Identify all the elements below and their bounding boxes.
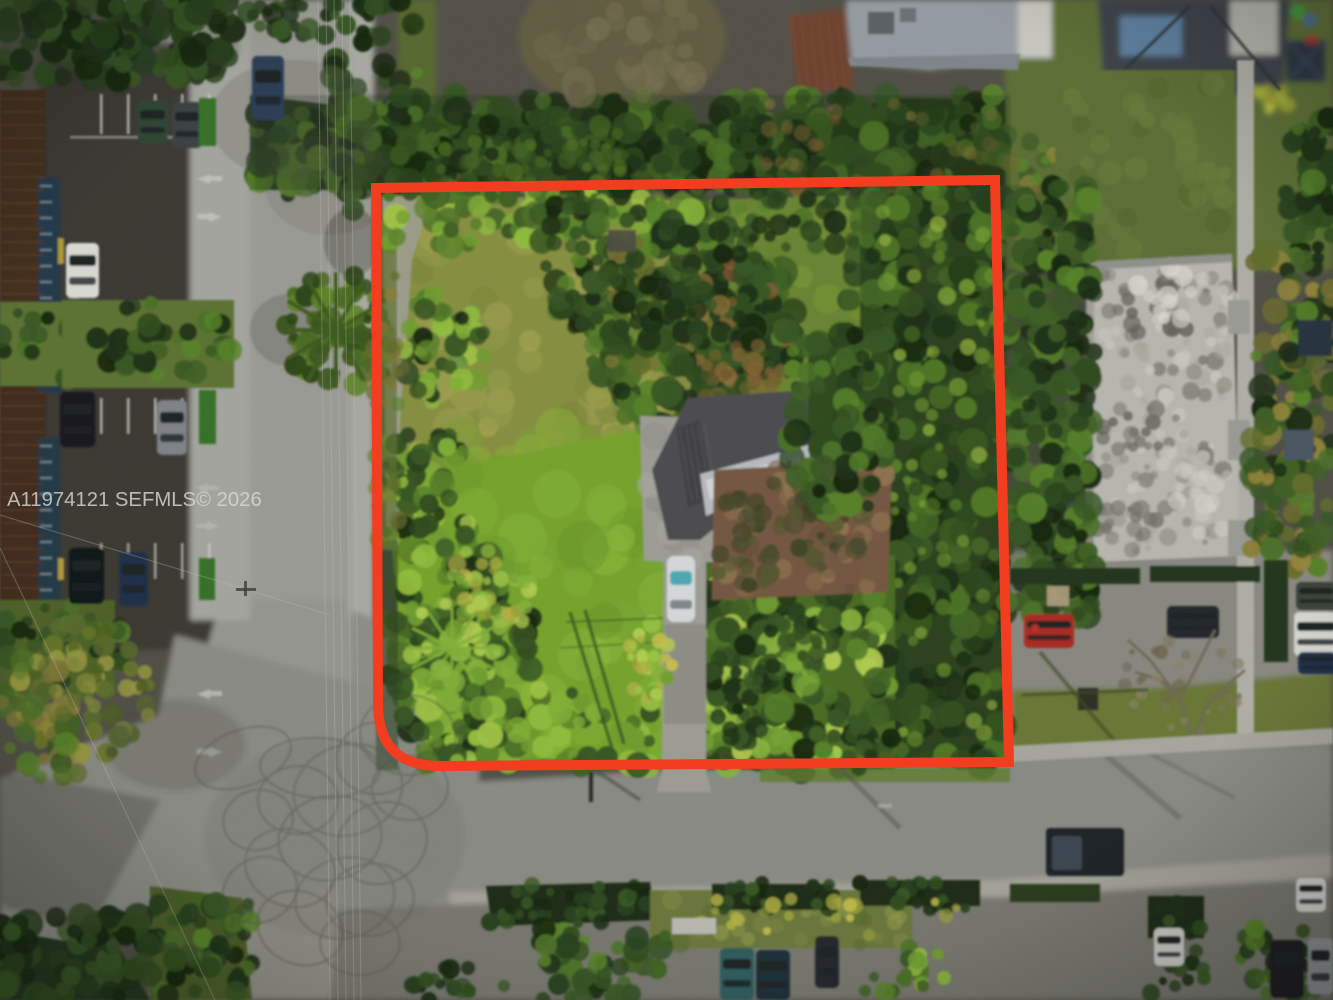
svg-text:A11974121 SEFMLS© 2026: A11974121 SEFMLS© 2026 <box>7 489 262 511</box>
